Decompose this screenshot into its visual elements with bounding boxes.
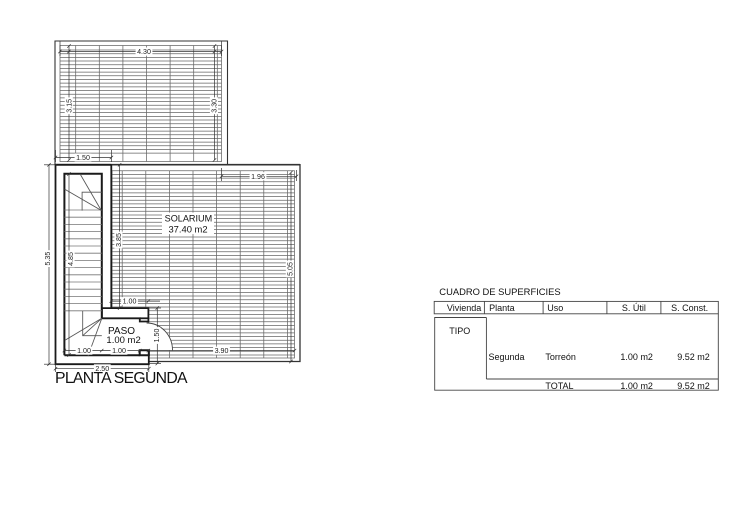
svg-text:Torreón: Torreón <box>545 352 576 362</box>
svg-text:1.00: 1.00 <box>77 347 91 355</box>
svg-text:Planta: Planta <box>489 303 515 313</box>
svg-text:9.52 m2: 9.52 m2 <box>677 352 710 362</box>
svg-text:1.00 m2: 1.00 m2 <box>620 381 653 391</box>
svg-text:S. Útil: S. Útil <box>622 303 646 313</box>
svg-text:TOTAL: TOTAL <box>545 381 573 391</box>
svg-text:3.90: 3.90 <box>215 347 229 355</box>
svg-text:5.05: 5.05 <box>286 262 294 276</box>
svg-text:1.00 m2: 1.00 m2 <box>106 335 140 346</box>
svg-text:Segunda: Segunda <box>489 352 525 362</box>
svg-text:CUADRO DE SUPERFICIES: CUADRO DE SUPERFICIES <box>439 286 560 297</box>
svg-text:1.00 m2: 1.00 m2 <box>620 352 653 362</box>
svg-text:TIPO: TIPO <box>449 326 470 336</box>
svg-text:SOLARIUM: SOLARIUM <box>165 213 213 223</box>
svg-text:3.15: 3.15 <box>65 99 73 113</box>
svg-text:1.50: 1.50 <box>153 329 161 343</box>
svg-text:PLANTA SEGUNDA: PLANTA SEGUNDA <box>55 370 188 387</box>
svg-text:4.30: 4.30 <box>137 48 151 56</box>
svg-text:1.00: 1.00 <box>123 298 137 306</box>
svg-text:Uso: Uso <box>547 303 563 313</box>
svg-text:4.85: 4.85 <box>67 252 75 266</box>
svg-text:1.00: 1.00 <box>112 347 126 355</box>
svg-text:1.50: 1.50 <box>76 154 90 162</box>
svg-text:3.85: 3.85 <box>115 233 123 247</box>
svg-text:3.30: 3.30 <box>211 99 219 113</box>
svg-text:Vivienda: Vivienda <box>447 303 481 313</box>
svg-text:5.35: 5.35 <box>44 252 52 266</box>
svg-text:9.52 m2: 9.52 m2 <box>677 381 710 391</box>
svg-text:S. Const.: S. Const. <box>671 303 708 313</box>
svg-text:1.96: 1.96 <box>251 173 265 181</box>
svg-text:37.40 m2: 37.40 m2 <box>168 224 207 235</box>
